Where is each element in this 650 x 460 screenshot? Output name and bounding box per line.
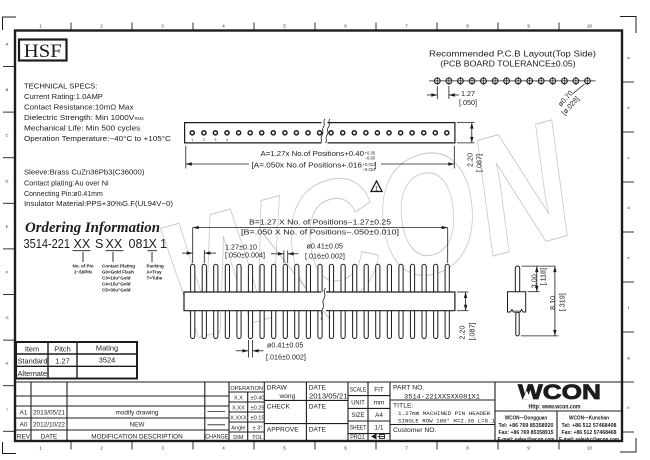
svg-text:Sleeve:Brass CuZn36Pb3(C36000): Sleeve:Brass CuZn36Pb3(C36000) <box>24 167 145 176</box>
svg-text:Connecting Pin:ø0.41mm: Connecting Pin:ø0.41mm <box>24 189 103 198</box>
svg-text:A0: A0 <box>20 422 28 429</box>
svg-text:H: H <box>6 361 9 366</box>
svg-text:4: 4 <box>226 138 228 142</box>
svg-text:MODIFICATION DESCRIPTION: MODIFICATION DESCRIPTION <box>91 433 183 440</box>
svg-text:2.20: 2.20 <box>465 153 474 167</box>
svg-text:TOL: TOL <box>252 435 263 441</box>
svg-text:[.050]: [.050] <box>459 98 477 107</box>
svg-text:[.087]: [.087] <box>475 154 484 172</box>
svg-text:2.20: 2.20 <box>457 326 466 340</box>
svg-text:2013/05/21: 2013/05/21 <box>33 410 65 417</box>
svg-text:D: D <box>6 178 9 183</box>
svg-text:ø0.41±0.05: ø0.41±0.05 <box>267 340 303 349</box>
svg-text:FIT: FIT <box>374 387 384 394</box>
svg-text:Fax: +86 769 85358915: Fax: +86 769 85358915 <box>499 430 554 436</box>
svg-text:XX: XX <box>74 237 91 251</box>
svg-text:No. of Pin: No. of Pin <box>73 264 94 269</box>
svg-text:d: d <box>627 205 629 210</box>
svg-text:10: 10 <box>587 446 592 451</box>
svg-text:mm: mm <box>374 399 385 406</box>
svg-text:OPERATION: OPERATION <box>230 386 263 392</box>
svg-text:10: 10 <box>587 24 592 29</box>
svg-text:B=1.27 X No. of Positions−: B=1.27 X No. of Positions−1.27±0.25 <box>249 217 391 226</box>
svg-text:[.016±0.002]: [.016±0.002] <box>266 352 306 361</box>
svg-text:C4=15u"Gold: C4=15u"Gold <box>102 282 131 287</box>
svg-text:I: I <box>6 406 7 411</box>
svg-text:X.XXX: X.XXX <box>230 416 247 422</box>
svg-text:TITLE:: TITLE: <box>393 403 414 410</box>
svg-text:[.087]: [.087] <box>468 323 477 341</box>
svg-text:SCALE: SCALE <box>350 387 367 394</box>
svg-text:SHEET: SHEET <box>350 425 367 432</box>
svg-text:SIZE: SIZE <box>352 412 365 419</box>
svg-text:1.27: 1.27 <box>461 89 475 98</box>
svg-text:3: 3 <box>214 138 216 142</box>
svg-text:X.X: X.X <box>234 396 243 402</box>
svg-text:UNIT: UNIT <box>351 399 365 406</box>
svg-text:A=Tray: A=Tray <box>147 270 163 275</box>
svg-text:G: G <box>5 315 8 320</box>
svg-text:Recommended P.C.B Layout(Top: Recommended P.C.B Layout(Top Side) <box>429 50 596 59</box>
svg-text:1.27mm MACHINED PIN HEADER: 1.27mm MACHINED PIN HEADER <box>398 410 490 417</box>
svg-text:S: S <box>95 237 103 251</box>
svg-text:Contact Plating: Contact Plating <box>102 264 135 269</box>
svg-text:PROJ.: PROJ. <box>350 434 366 441</box>
svg-text:[A=.050x No.of Positions+.01: [A=.050x No.of Positions+.016 <box>252 161 363 170</box>
svg-text:Insulator Material:PPS+30%G.F(: Insulator Material:PPS+30%G.F(UL94V−0) <box>24 199 173 208</box>
svg-text:1: 1 <box>160 237 167 251</box>
svg-text:A4: A4 <box>375 412 383 419</box>
svg-text:TECHNICAL SPECS:: TECHNICAL SPECS: <box>24 82 97 91</box>
svg-text:[.050±0.004]: [.050±0.004] <box>225 251 265 260</box>
svg-text:DATE: DATE <box>309 427 327 434</box>
svg-text:CHECK: CHECK <box>267 404 291 411</box>
svg-text:Contact Resistance:10mΩ Max: Contact Resistance:10mΩ Max <box>24 103 134 112</box>
svg-text:Customer NO.: Customer NO. <box>393 427 437 434</box>
svg-text:APPROVE: APPROVE <box>267 427 299 434</box>
svg-text:DATE: DATE <box>41 433 58 440</box>
svg-text:1/1: 1/1 <box>375 425 384 432</box>
svg-text:±0.25: ±0.25 <box>251 406 265 412</box>
svg-text:RMS: RMS <box>135 116 145 121</box>
svg-text:± 3°: ± 3° <box>253 426 263 432</box>
svg-text:[.319]: [.319] <box>557 293 566 311</box>
svg-text:E: E <box>6 224 9 229</box>
svg-text:T=Tube: T=Tube <box>147 276 163 281</box>
svg-text:Ordering Information: Ordering Information <box>25 220 160 236</box>
svg-text:E-mail: sales@wcon.com: E-mail: sales@wcon.com <box>498 437 555 443</box>
svg-text:[.016±0.002]: [.016±0.002] <box>305 252 345 261</box>
svg-text:Mating: Mating <box>96 344 118 353</box>
svg-text:[.118]: [.118] <box>539 268 548 285</box>
svg-text:Http: www.wcon.com: Http: www.wcon.com <box>529 403 581 410</box>
svg-text:2012/10/22: 2012/10/22 <box>33 422 65 429</box>
svg-text:C5=30u"Gold: C5=30u"Gold <box>102 288 131 293</box>
svg-text:2: 2 <box>203 138 205 142</box>
svg-text:A=1.27x No.of Positions+0.40: A=1.27x No.of Positions+0.40 <box>261 149 365 158</box>
svg-text:Packing: Packing <box>147 264 165 269</box>
svg-text:(PCB BOARD TOLERANCE±0.05): (PCB BOARD TOLERANCE±0.05) <box>440 60 576 69</box>
svg-text:DIM: DIM <box>233 435 244 441</box>
svg-text:g: g <box>627 355 629 360</box>
svg-text:XX: XX <box>106 237 123 251</box>
svg-text:WCON: WCON <box>518 381 601 404</box>
svg-text:HSF: HSF <box>24 42 62 62</box>
svg-text:Mechanical Life: Min 500 cycle: Mechanical Life: Min 500 cycles <box>24 124 141 133</box>
svg-text:3514-221: 3514-221 <box>24 237 71 251</box>
svg-text:Tel: +86 512 57468408: Tel: +86 512 57468408 <box>562 423 617 429</box>
svg-text:G0=Gold Flash: G0=Gold Flash <box>102 270 134 275</box>
svg-text:Standard: Standard <box>18 357 48 366</box>
svg-text:Angle: Angle <box>231 426 245 432</box>
svg-text:CHANGE: CHANGE <box>205 433 228 440</box>
svg-text:C: C <box>6 133 9 138</box>
svg-text:modify drawing: modify drawing <box>116 410 159 417</box>
svg-text:A1: A1 <box>20 410 28 417</box>
svg-text:ø0.41±0.05: ø0.41±0.05 <box>307 241 343 250</box>
svg-text:±0.40: ±0.40 <box>251 396 265 402</box>
svg-text:2~50PIN: 2~50PIN <box>74 270 92 275</box>
svg-text:3524: 3524 <box>99 356 115 365</box>
svg-text:A: A <box>6 42 9 47</box>
svg-text:Current Rating:1.0AMP: Current Rating:1.0AMP <box>24 92 103 101</box>
svg-text:B: B <box>6 87 9 92</box>
svg-text:3.00: 3.00 <box>529 274 538 288</box>
svg-text:PART NO.: PART NO. <box>393 385 424 392</box>
svg-text:DATE: DATE <box>309 404 327 411</box>
svg-text:DRAW: DRAW <box>267 385 288 392</box>
svg-text:]: ] <box>375 161 377 170</box>
svg-text:Operation Temperature:−40°C to: Operation Temperature:−40°C to +105°C <box>24 134 171 143</box>
svg-text:C3=10u"Gold: C3=10u"Gold <box>102 276 131 281</box>
svg-text:1: 1 <box>191 138 193 142</box>
svg-text:±0.15: ±0.15 <box>251 416 265 422</box>
svg-text:[B=.050 X No. of Positions: [B=.050 X No. of Positions−.050±0.010] <box>241 228 399 237</box>
svg-text:SINGLE ROW 180° H=2.30 L=8.1: SINGLE ROW 180° H=2.30 L=8.1 <box>398 417 495 424</box>
svg-text:081: 081 <box>129 237 150 251</box>
svg-text:Dielectric Strength: Min 1000V: Dielectric Strength: Min 1000V <box>24 113 135 122</box>
svg-text:Alternate: Alternate <box>18 369 48 378</box>
svg-text:h: h <box>627 405 629 410</box>
svg-text:X.XX: X.XX <box>232 406 245 412</box>
svg-text:WCON—Dongguan: WCON—Dongguan <box>505 416 548 422</box>
svg-text:WCON—Kunshan: WCON—Kunshan <box>569 416 609 422</box>
svg-text:Item: Item <box>25 345 39 354</box>
svg-text:Tel: +86 769 85358920: Tel: +86 769 85358920 <box>499 423 554 429</box>
svg-text:2013/05/21: 2013/05/21 <box>309 392 348 401</box>
svg-text:wong: wong <box>279 393 296 400</box>
svg-text:Fax: +86 512 57468468: Fax: +86 512 57468468 <box>562 430 617 436</box>
svg-text:c: c <box>628 155 630 160</box>
svg-text:REV: REV <box>17 433 31 440</box>
svg-text:DATE: DATE <box>309 385 327 392</box>
svg-text:X: X <box>149 237 158 251</box>
svg-text:8.10: 8.10 <box>548 296 557 310</box>
svg-text:E-mail: saleskc@wcon.com: E-mail: saleskc@wcon.com <box>559 437 619 443</box>
svg-text:Pitch: Pitch <box>54 345 70 354</box>
svg-text:3514-221XXSXX081X1: 3514-221XXSXX081X1 <box>404 393 480 401</box>
svg-text:Contact plating:Au over Ni: Contact plating:Au over Ni <box>24 179 109 188</box>
svg-text:1.27: 1.27 <box>55 357 69 366</box>
svg-text:NEW: NEW <box>130 422 146 429</box>
